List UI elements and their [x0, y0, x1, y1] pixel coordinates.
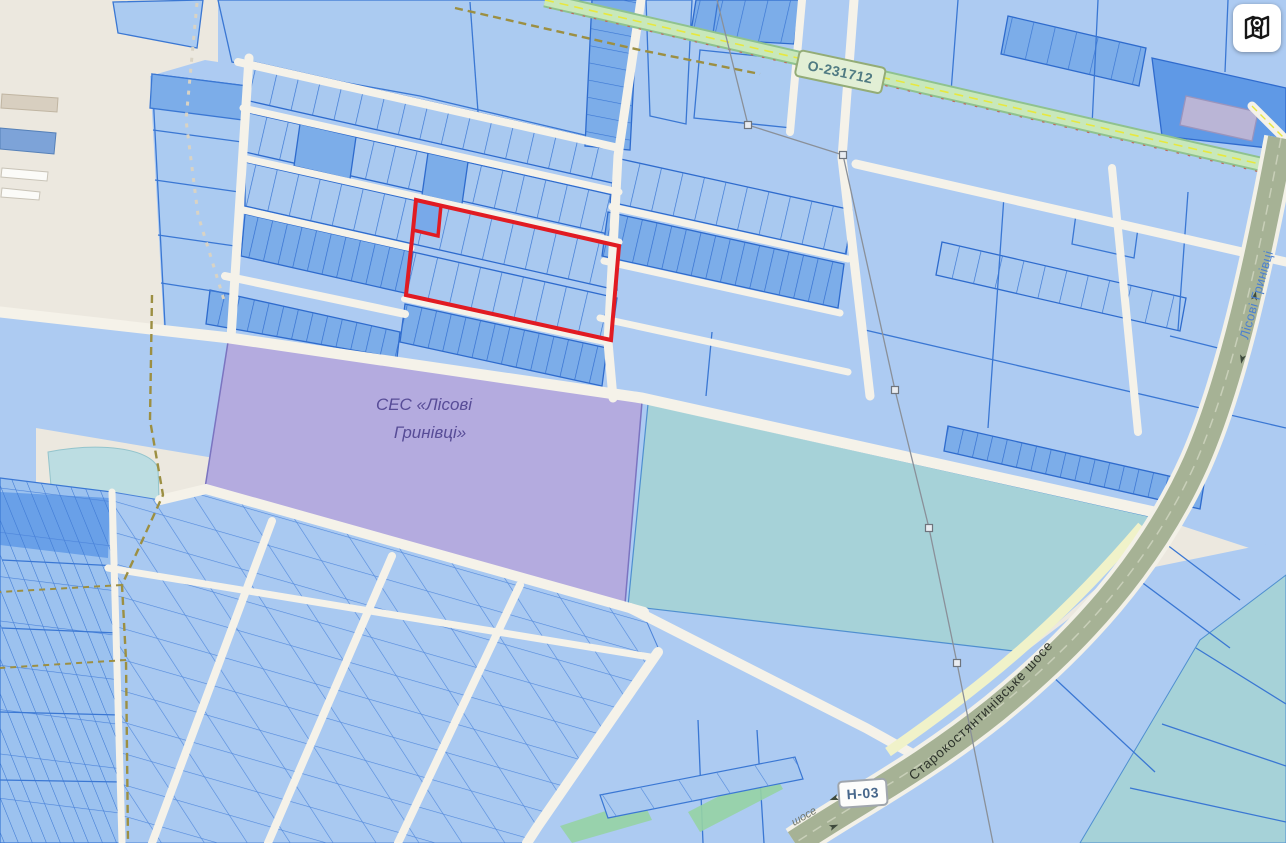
map-location-icon — [1242, 13, 1272, 43]
map-layers-button[interactable] — [1233, 4, 1281, 52]
ses-label-line2: Гринівці» — [394, 423, 466, 442]
ses-label-line1: СЕС «Лісові — [376, 395, 473, 414]
map-canvas: СЕС «Лісові Гринівці» Лісові Гринівці Ст… — [0, 0, 1286, 843]
road-badge-n03: Н-03 — [838, 779, 888, 808]
map-viewport[interactable]: СЕС «Лісові Гринівці» Лісові Гринівці Ст… — [0, 0, 1286, 843]
svg-text:Н-03: Н-03 — [846, 784, 879, 802]
strip-parcels-bottom-left — [0, 478, 120, 843]
